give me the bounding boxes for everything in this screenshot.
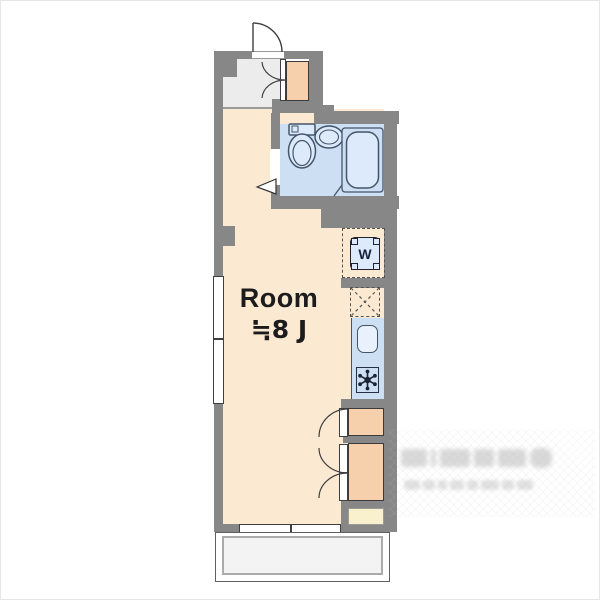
floorplan-canvas: W [0, 0, 600, 600]
closet-upper-door-leaf [339, 408, 348, 437]
bathroom-doorway [270, 149, 280, 185]
entry-door-icon [253, 23, 282, 52]
closet-lower-door-leaf [339, 444, 348, 501]
wall-left-lower [214, 404, 223, 524]
wall-entry-chunk [223, 53, 237, 77]
room-label: Room ≒8 J [223, 282, 335, 345]
closet-lower [348, 443, 384, 501]
kitchen-sink-icon [357, 325, 378, 353]
wall-bottom-right [341, 524, 389, 532]
wall-closet-bottom [341, 501, 391, 508]
shoe-cabinet [286, 61, 309, 101]
fridge-space-dashed [350, 287, 380, 317]
closet-upper [348, 408, 384, 436]
washer-corner-icon [373, 263, 380, 270]
wall-bottom-left [214, 524, 239, 532]
wall-bath-bottom [271, 196, 399, 209]
door-leaf-divider [340, 472, 347, 473]
wall-pillar [223, 226, 235, 246]
wall-bath-left-upper [271, 113, 280, 151]
wall-under-cabinet [272, 99, 312, 113]
wall-thick-block [321, 209, 391, 228]
counter-nook [348, 508, 384, 525]
watermark-pattern [389, 429, 595, 517]
balcony-floor [222, 536, 383, 575]
room-name: Room [223, 282, 335, 314]
window-south-sash-tick [290, 525, 292, 532]
watermark-line-1 [401, 448, 552, 468]
entry-threshold [252, 51, 284, 59]
washer-corner-icon [351, 263, 358, 270]
shoe-cabinet-door-leaf [280, 59, 286, 101]
bathroom-floor [279, 124, 384, 196]
entry-room-step-line [223, 107, 274, 109]
window-left-sash-tick [214, 338, 223, 340]
wall-left-upper [214, 51, 223, 276]
washer-label: W [350, 244, 380, 263]
stove-icon [356, 367, 379, 393]
watermark-line-2 [404, 480, 533, 490]
wall-bath-top-notch [319, 105, 334, 113]
room-size: ≒8 J [223, 314, 335, 345]
wall-closet-divider [343, 436, 384, 443]
